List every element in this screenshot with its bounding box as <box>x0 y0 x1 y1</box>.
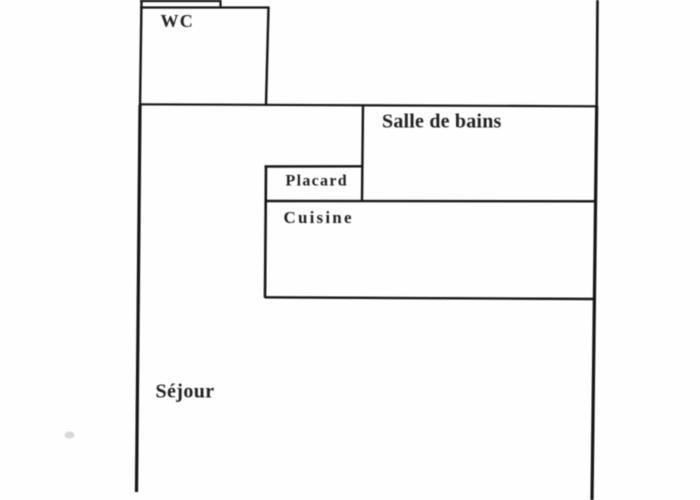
svg-text:Salle de bains: Salle de bains <box>382 111 502 133</box>
svg-text:Séjour: Séjour <box>156 381 215 403</box>
svg-text:WC: WC <box>161 11 194 31</box>
svg-text:Placard: Placard <box>286 173 348 190</box>
svg-text:Cuisine: Cuisine <box>284 208 354 227</box>
